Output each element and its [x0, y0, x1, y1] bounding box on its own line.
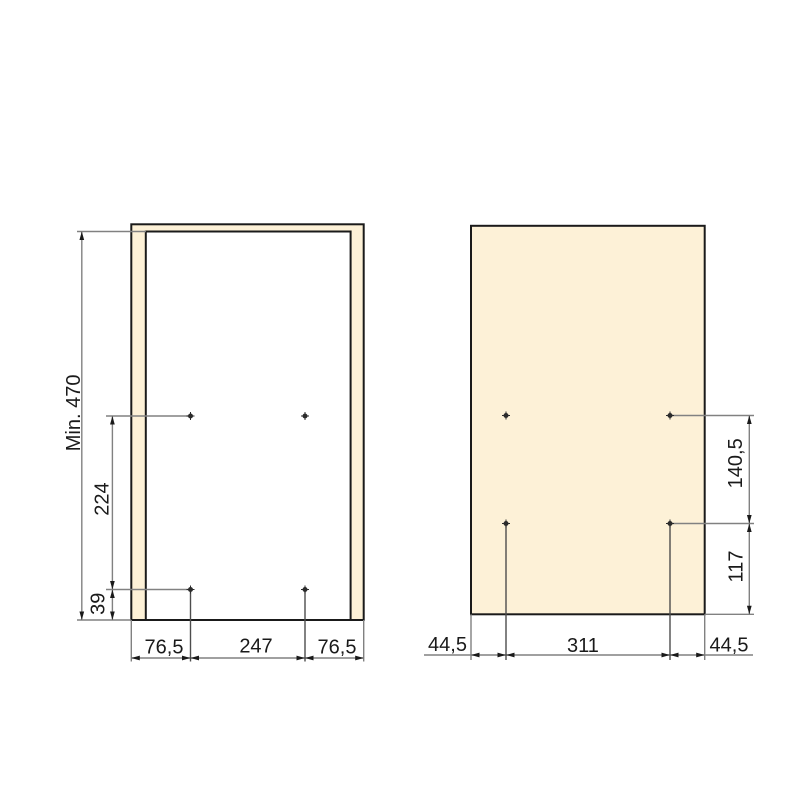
svg-text:311: 311 — [567, 635, 599, 657]
svg-text:247: 247 — [239, 636, 272, 658]
svg-text:224: 224 — [92, 482, 114, 515]
svg-text:44,5: 44,5 — [710, 635, 749, 657]
svg-text:117: 117 — [726, 551, 748, 583]
svg-text:140,5: 140,5 — [725, 438, 747, 488]
svg-text:76,5: 76,5 — [318, 637, 357, 659]
svg-text:44,5: 44,5 — [428, 634, 467, 656]
svg-text:76,5: 76,5 — [145, 637, 184, 659]
svg-text:39: 39 — [87, 593, 109, 615]
svg-text:Min. 470: Min. 470 — [63, 375, 85, 452]
